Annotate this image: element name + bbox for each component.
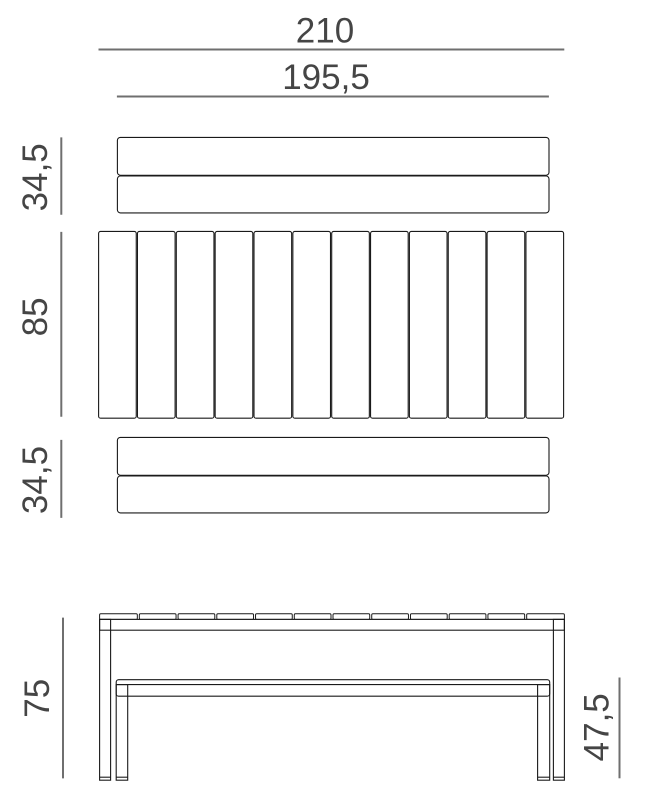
svg-text:210: 210: [296, 11, 354, 50]
svg-text:85: 85: [16, 297, 55, 336]
svg-text:34,5: 34,5: [16, 446, 55, 514]
svg-text:47,5: 47,5: [578, 693, 617, 761]
svg-text:34,5: 34,5: [16, 143, 55, 211]
svg-text:195,5: 195,5: [282, 58, 370, 97]
svg-text:75: 75: [18, 679, 57, 718]
